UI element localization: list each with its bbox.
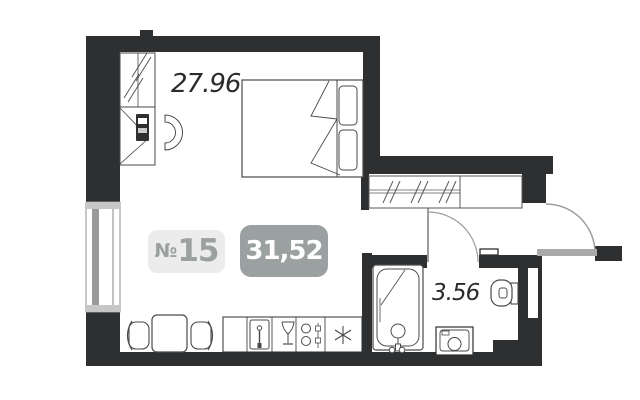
wall-closet-stub: [361, 174, 369, 210]
wall-bath-top-right: [479, 255, 518, 268]
chair-icon: [129, 322, 149, 349]
dining-set: [128, 315, 213, 352]
wall-bath-left: [362, 253, 372, 354]
bathtub-icon: [373, 265, 423, 353]
dining-table-icon: [152, 315, 187, 352]
total-area-badge: 31,52: [240, 225, 328, 277]
washing-machine-icon: [436, 327, 473, 355]
wall-top: [86, 36, 380, 52]
bathroom-area-label: 3.56: [432, 280, 479, 306]
wall-entry-block: [522, 174, 546, 203]
living-room-area-label: 27.96: [171, 69, 240, 99]
bathroom-door-icon: [428, 208, 498, 262]
wall-bath-corner: [493, 340, 542, 366]
wall-bedroom-right: [363, 52, 380, 158]
kitchen-counter: [223, 317, 362, 352]
wall-bottom: [86, 352, 542, 366]
chair-icon: [191, 322, 211, 349]
unit-number-prefix: №: [155, 242, 178, 261]
entrance-door-icon: [537, 204, 597, 256]
unit-number-badge: №15: [148, 230, 225, 273]
unit-number: 15: [177, 236, 218, 267]
bed-icon: [242, 80, 363, 177]
laptop-icon: [136, 114, 149, 141]
toilet-icon: [491, 280, 518, 306]
duct-shaft: [528, 268, 538, 318]
wall-entry-right-stub: [595, 246, 622, 261]
floor-plan-drawing: [0, 0, 640, 400]
floor-plan: 27.96 3.56 №15 31,52: [0, 0, 640, 400]
wall-left-upper: [86, 36, 120, 202]
hall-closet-icon: [369, 176, 522, 208]
wardrobe-mirror-icon: [120, 53, 155, 108]
wall-hall-top: [363, 156, 553, 174]
desk-chair-icon: [165, 115, 183, 150]
window-icon: [86, 202, 120, 312]
